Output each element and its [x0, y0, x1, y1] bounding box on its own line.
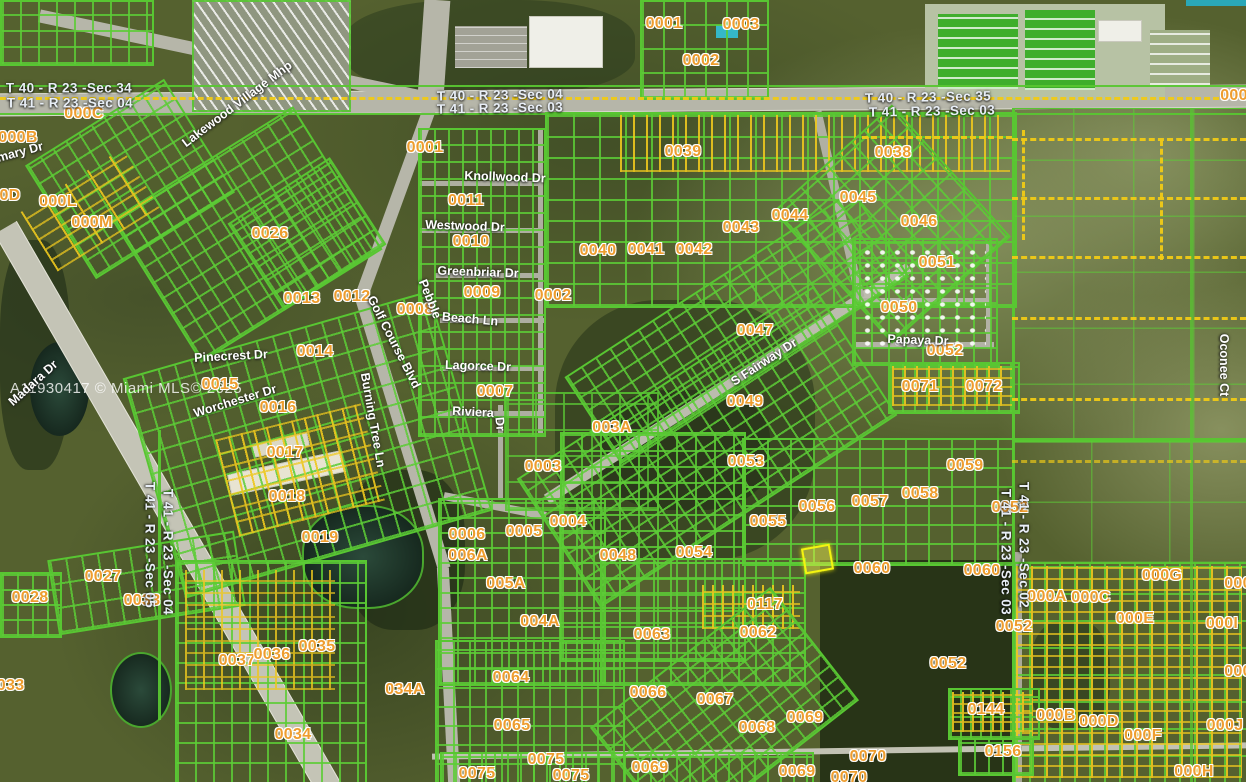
dashed-section-line — [1012, 256, 1246, 259]
parcel-label[interactable]: 000E — [1116, 610, 1155, 628]
parcel-label[interactable]: 0018 — [269, 488, 306, 506]
parcel-label[interactable]: 0009 — [464, 284, 501, 302]
parcel-label[interactable]: 0062 — [740, 624, 777, 642]
parcel-label[interactable]: 000L — [39, 193, 77, 211]
parcel-label[interactable]: 0068 — [739, 719, 776, 737]
parcel-label[interactable]: 0056 — [799, 498, 836, 516]
section-line — [1190, 108, 1193, 782]
parcel-label[interactable]: 0007 — [477, 383, 514, 401]
parcel-label[interactable]: 0051 — [919, 254, 956, 272]
parcel-label[interactable]: 000M — [71, 214, 112, 232]
parcel-label[interactable]: 0049 — [727, 393, 764, 411]
parcel-label[interactable]: 000H — [1174, 763, 1213, 781]
parking-lot — [455, 26, 527, 68]
parcel-label[interactable]: 0014 — [297, 343, 334, 361]
parcel-label[interactable]: 0019 — [302, 529, 339, 547]
parcel-label[interactable]: 0028 — [12, 589, 49, 607]
parcel-label[interactable]: 004A — [520, 613, 559, 631]
nursery-rows — [938, 14, 1018, 89]
parcel-label[interactable]: 0006 — [449, 526, 486, 544]
parcel-label[interactable]: 0144 — [968, 701, 1005, 719]
parcel-label[interactable]: 0060 — [854, 560, 891, 578]
parcel-label[interactable]: 0065 — [494, 717, 531, 735]
nursery-rows — [1025, 10, 1095, 90]
parcel-label[interactable]: 0075 — [553, 767, 590, 782]
parcel-label[interactable]: 0066 — [630, 684, 667, 702]
dashed-section-line — [1012, 197, 1246, 200]
highlighted-parcel[interactable] — [801, 544, 834, 575]
parcel-label[interactable]: 0D — [0, 187, 21, 205]
building — [529, 16, 603, 68]
parcel-label[interactable]: 0003 — [525, 458, 562, 476]
street-label: Papaya Dr — [887, 332, 949, 348]
parcel-label[interactable]: 0010 — [453, 233, 490, 251]
parcel-label[interactable]: 0070 — [831, 769, 868, 782]
parcel-label[interactable]: 0059 — [947, 457, 984, 475]
parcel-label[interactable]: 000I — [1206, 615, 1238, 633]
parcel-label[interactable]: 0048 — [600, 547, 637, 565]
parcel-label[interactable]: 003A — [592, 419, 631, 437]
parcel-label[interactable]: 0042 — [676, 241, 713, 259]
parcel-grid-rural — [1012, 440, 1246, 564]
parcel-label[interactable]: 0045 — [840, 189, 877, 207]
parcel-label[interactable]: 0027 — [85, 568, 122, 586]
parcel-label[interactable]: 000J — [1207, 717, 1244, 735]
street-label: Knollwood Dr — [464, 169, 546, 186]
parcel-label[interactable]: 034A — [385, 681, 424, 699]
parcel-label[interactable]: 0016 — [260, 399, 297, 417]
street-label: Greenbriar Dr — [437, 264, 519, 281]
parcel-label[interactable]: 0064 — [493, 669, 530, 687]
section-line — [1012, 438, 1246, 441]
parcel-label[interactable]: 0055 — [750, 513, 787, 531]
parcel-label[interactable]: 0026 — [252, 225, 289, 243]
parcel-label[interactable]: 0047 — [737, 322, 774, 340]
section-label: T 41 - R 23 -Sec 03 — [437, 99, 563, 116]
section-label: T 41 - R 23 -Sec 03 — [999, 489, 1014, 615]
parcel-label[interactable]: 0117 — [747, 596, 783, 614]
parcel-label[interactable]: 0069 — [787, 709, 824, 727]
section-label: T 41 - R 23 -Sec 04 — [7, 96, 133, 111]
pool — [1186, 0, 1246, 6]
section-label: T 41 - R 23 -Sec 02 — [1017, 482, 1032, 608]
parcel-grid — [505, 392, 659, 511]
parcel-label[interactable]: 0033 — [0, 677, 24, 695]
section-line — [0, 85, 1246, 87]
parcel-label[interactable]: 000G — [1142, 567, 1182, 585]
dashed-section-line — [1012, 398, 1246, 401]
parcel-label[interactable]: 0013 — [284, 290, 321, 308]
parcel-label[interactable]: 0040 — [580, 242, 617, 260]
parcel-label[interactable]: 0041 — [628, 241, 665, 259]
parcel-label[interactable]: 0069 — [779, 763, 816, 781]
parcel-label[interactable]: 0072 — [966, 378, 1003, 396]
pond — [110, 652, 172, 728]
parcel-label[interactable]: 0069 — [632, 759, 669, 777]
parcel-label[interactable]: 0060 — [964, 562, 1001, 580]
parcel-label[interactable]: 0012 — [334, 288, 371, 306]
street-label: Oconee Ct — [1217, 334, 1231, 397]
parcel-label[interactable]: 0156 — [985, 743, 1022, 761]
parcel-label[interactable]: 0046 — [901, 213, 938, 231]
dashed-section-line — [1012, 138, 1246, 141]
parcel-label[interactable]: 0017 — [267, 444, 304, 462]
parcel-label[interactable]: 0011 — [448, 192, 484, 210]
yellow-plat-lines — [185, 570, 335, 690]
parcel-label[interactable]: 0036 — [254, 646, 291, 664]
parcel-label[interactable]: 0044 — [772, 207, 809, 225]
mobile-home-park — [192, 0, 351, 112]
parcel-label[interactable]: 000 — [1224, 575, 1246, 593]
section-label: T 41 - R 23 -Sec 04 — [161, 489, 176, 615]
section-label: T 40 - R 23 -Sec 34 — [6, 81, 132, 96]
parcel-label[interactable]: 005A — [486, 575, 525, 593]
parcel-label[interactable]: 0050 — [881, 299, 918, 317]
dashed-section-line — [1012, 460, 1246, 463]
section-label: T 41 - R 23 -Sec 03 — [869, 102, 995, 119]
parcel-grid — [0, 0, 154, 66]
parcel-label[interactable]: 0058 — [902, 485, 939, 503]
parcel-label[interactable]: 0034 — [275, 726, 312, 744]
parcel-label[interactable]: 0004 — [550, 513, 587, 531]
dashed-section-line — [1012, 317, 1246, 320]
satellite-parcel-map[interactable]: A11930417 © Miami MLS© 2025 000100030002… — [0, 0, 1246, 782]
parcel-label[interactable]: 0037 — [219, 652, 256, 670]
dashed-section-line — [0, 97, 1246, 100]
parcel-label[interactable]: 0063 — [634, 626, 671, 644]
parcel-label[interactable]: 0067 — [697, 691, 734, 709]
parcel-label[interactable]: 000C — [1071, 589, 1110, 607]
dashed-section-line — [1022, 130, 1025, 240]
parcel-label[interactable]: 000F — [1124, 727, 1162, 745]
street-label: Dr — [492, 416, 507, 431]
parcel-label[interactable]: 0071 — [902, 378, 939, 396]
parcel-label[interactable]: 000A — [1027, 588, 1066, 606]
section-line — [1012, 108, 1015, 782]
parcel-label[interactable]: 000 — [1220, 87, 1246, 105]
dashed-section-line — [862, 136, 1012, 139]
parcel-label[interactable]: 0003 — [723, 16, 760, 34]
parcel-label[interactable]: 0039 — [665, 143, 702, 161]
parcel-label[interactable]: 000D — [1079, 713, 1118, 731]
parcel-label[interactable]: 000 — [1224, 663, 1246, 681]
parcel-label[interactable]: 0002 — [683, 52, 720, 70]
section-label: T 41 - R 23 -Sec 05 — [143, 482, 158, 608]
section-line — [0, 113, 1246, 115]
parcel-label[interactable]: 0053 — [728, 453, 765, 471]
nursery-rows — [1150, 30, 1210, 85]
parcel-label[interactable]: 0035 — [299, 638, 336, 656]
parcel-label[interactable]: 0001 — [646, 15, 683, 33]
parcel-label[interactable]: 000B — [1036, 707, 1075, 725]
street-label: Westwood Dr — [425, 218, 505, 235]
parcel-label[interactable]: 0002 — [535, 287, 572, 305]
parcel-label[interactable]: 0043 — [723, 219, 760, 237]
street-label: Lagorce Dr — [445, 358, 511, 374]
parcel-label[interactable]: 0001 — [407, 139, 444, 157]
parcel-grid — [440, 752, 814, 782]
dashed-section-line — [1160, 140, 1163, 260]
parcel-label[interactable]: 0075 — [459, 765, 496, 782]
street-label: Riviera — [452, 404, 494, 420]
parcel-label[interactable]: 0052 — [996, 618, 1033, 636]
parcel-label[interactable]: 006A — [448, 547, 487, 565]
building — [1098, 20, 1142, 42]
parcel-label[interactable]: 0015 — [202, 376, 239, 394]
parcel-label[interactable]: 0054 — [676, 544, 713, 562]
parcel-label[interactable]: 0070 — [850, 748, 887, 766]
parcel-label[interactable]: 0052 — [930, 655, 967, 673]
parcel-label[interactable]: 0005 — [506, 523, 543, 541]
parcel-label[interactable]: 0038 — [875, 144, 912, 162]
parcel-label[interactable]: 0057 — [852, 493, 889, 511]
parcel-grid-rural — [1012, 108, 1246, 442]
